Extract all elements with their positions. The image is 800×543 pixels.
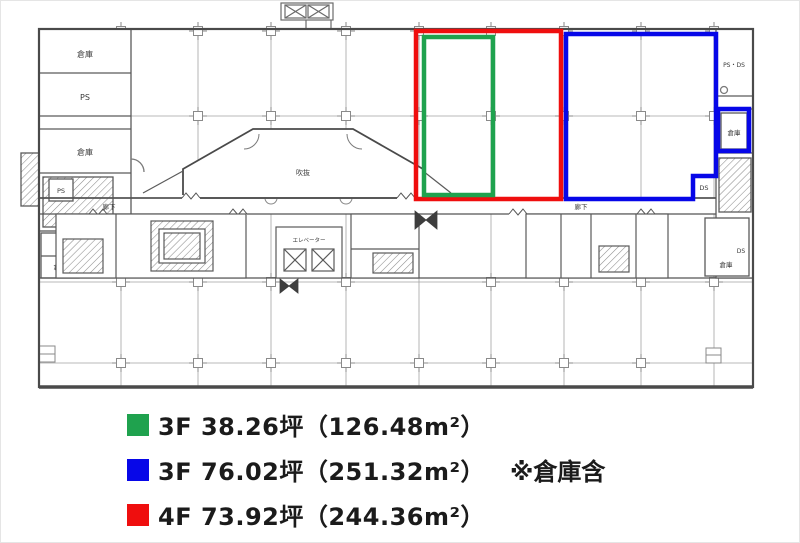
room-label-warehouse-1: 倉庫 <box>77 49 93 59</box>
room-label-ps-ds: PS・DS <box>723 62 745 69</box>
room-label-ps-stair: PS <box>57 187 65 195</box>
legend-item-blue-3f: 3F 76.02坪（251.32m²） ※倉庫含 <box>127 452 799 487</box>
legend-swatch-green <box>127 414 149 436</box>
core-block-elevator <box>276 227 342 278</box>
core-block-center-right <box>351 214 419 278</box>
legend-label-blue: 3F 76.02坪（251.32m²） <box>158 452 485 487</box>
legend-label-green: 3F 38.26坪（126.48m²） <box>158 407 485 442</box>
legend-note-warehouse-included: ※倉庫含 <box>510 452 605 487</box>
room-label-warehouse-blue: 倉庫 <box>728 128 742 137</box>
column-grid-lines <box>39 31 753 387</box>
floor-plan: 倉庫 PS 倉庫 PS 倉庫 吹抜 廊下 廊下 エレベ <box>1 1 800 403</box>
legend-swatch-red <box>127 504 149 526</box>
machine-room <box>281 3 333 29</box>
room-label-warehouse-right: 倉庫 <box>720 260 734 269</box>
core-block-stairs-wc <box>56 214 246 278</box>
legend-item-red-4f: 4F 73.92坪（244.36m²） <box>127 497 799 532</box>
room-label-warehouse-2: 倉庫 <box>77 147 93 157</box>
legend: 3F 38.26坪（126.48m²） 3F 76.02坪（251.32m²） … <box>127 407 799 532</box>
legend-swatch-blue <box>127 459 149 481</box>
outer-walls <box>39 29 753 387</box>
room-label-ps-left: PS <box>80 93 90 102</box>
room-label-ds-notch: DS <box>699 184 708 192</box>
floor-plan-svg: 倉庫 PS 倉庫 PS 倉庫 吹抜 廊下 廊下 エレベ <box>1 1 800 403</box>
room-label-atrium: 吹抜 <box>296 168 310 177</box>
corridor-label-right: 廊下 <box>575 202 589 211</box>
legend-label-red: 4F 73.92坪（244.36m²） <box>158 497 485 532</box>
core-block-right <box>526 214 668 278</box>
atrium-core <box>143 129 451 198</box>
room-label-ds-right: DS <box>737 248 746 255</box>
room-label-elevator: エレベーター <box>292 236 325 244</box>
legend-item-green-3f: 3F 38.26坪（126.48m²） <box>127 407 799 442</box>
corridor-label-left: 廊下 <box>103 202 117 211</box>
